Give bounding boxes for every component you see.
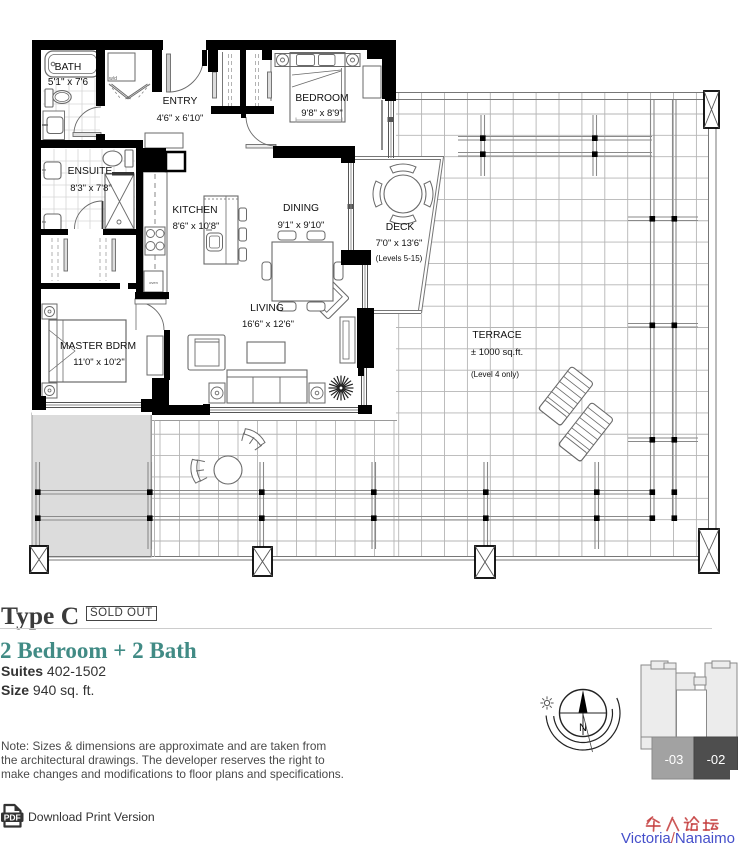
svg-text:TERRACE: TERRACE bbox=[472, 330, 521, 341]
svg-text:± 1000 sq.ft.: ± 1000 sq.ft. bbox=[471, 347, 523, 358]
svg-text:11'0" x 10'2": 11'0" x 10'2" bbox=[73, 357, 124, 368]
svg-text:DINING: DINING bbox=[283, 203, 319, 214]
svg-text:BATH: BATH bbox=[55, 62, 82, 73]
svg-text:16'6" x 12'6": 16'6" x 12'6" bbox=[242, 319, 294, 330]
svg-text:5'1" x 7'6: 5'1" x 7'6 bbox=[48, 77, 89, 88]
svg-text:(Level 4 only): (Level 4 only) bbox=[471, 370, 519, 379]
svg-text:ENSUITE: ENSUITE bbox=[68, 166, 113, 177]
svg-text:MASTER BDRM: MASTER BDRM bbox=[60, 341, 136, 352]
svg-text:LIVING: LIVING bbox=[250, 303, 284, 314]
svg-text:8'6" x 10'8": 8'6" x 10'8" bbox=[173, 221, 220, 232]
svg-text:4'6" x 6'10": 4'6" x 6'10" bbox=[157, 113, 204, 124]
svg-text:-03: -03 bbox=[665, 752, 684, 767]
svg-text:-02: -02 bbox=[707, 752, 726, 767]
svg-text:ENTRY: ENTRY bbox=[163, 96, 198, 107]
svg-text:PDF: PDF bbox=[4, 813, 21, 823]
svg-text:(Levels 5-15): (Levels 5-15) bbox=[376, 254, 423, 263]
svg-text:8'3" x 7'8": 8'3" x 7'8" bbox=[70, 183, 112, 194]
svg-text:7'0" x 13'6": 7'0" x 13'6" bbox=[376, 238, 423, 249]
svg-text:9'1" x 9'10": 9'1" x 9'10" bbox=[278, 220, 325, 231]
svg-text:BEDROOM: BEDROOM bbox=[295, 93, 348, 104]
svg-text:DECK: DECK bbox=[386, 222, 415, 233]
svg-text:9'8" x 8'9": 9'8" x 8'9" bbox=[301, 108, 343, 119]
svg-text:oven: oven bbox=[149, 280, 158, 285]
svg-text:KITCHEN: KITCHEN bbox=[172, 205, 217, 216]
svg-text:w/d: w/d bbox=[109, 76, 117, 82]
